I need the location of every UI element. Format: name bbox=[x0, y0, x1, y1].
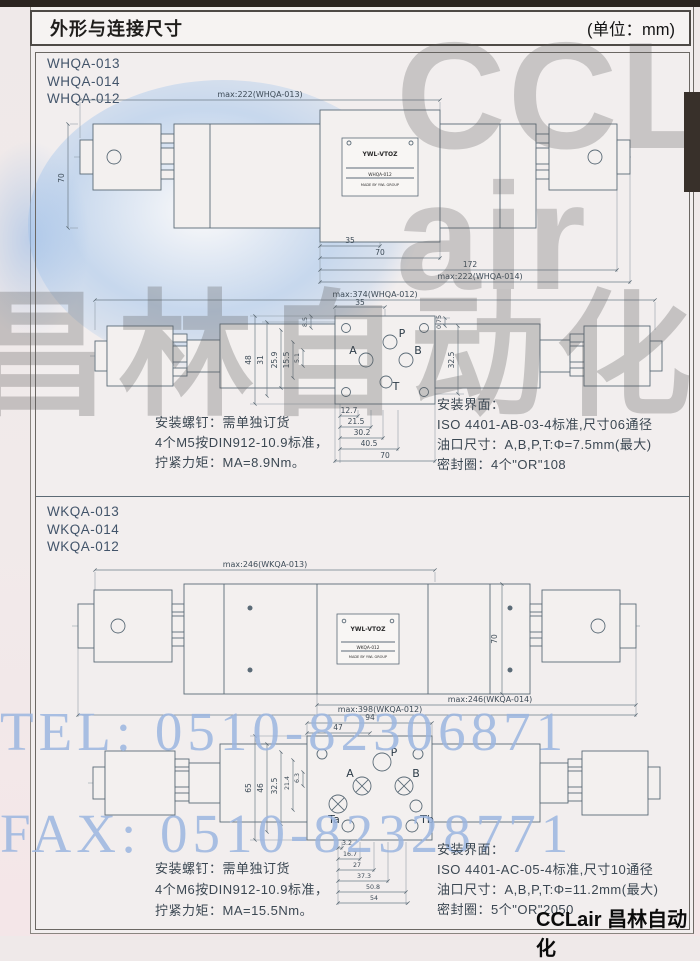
dim-label: 0.75 bbox=[436, 315, 443, 329]
dim-label: max:398(WKQA-012) bbox=[338, 705, 423, 714]
model-name: WHQA-013 bbox=[47, 55, 120, 73]
wkqa-model-list: WKQA-013 WKQA-014 WKQA-012 bbox=[47, 503, 119, 556]
dim-label: 65 bbox=[244, 783, 253, 793]
nameplate-origin: MADE BY YWL GROUP bbox=[361, 183, 399, 187]
footer-brand: CCLair 昌林自动化 bbox=[536, 903, 700, 961]
dim-label: 27 bbox=[353, 862, 361, 869]
note-line: 安装界面： bbox=[437, 840, 658, 860]
page-edge-right bbox=[684, 92, 700, 192]
dim-label: max:246(WKQA-014) bbox=[448, 695, 533, 704]
dim-label: 70 bbox=[490, 634, 499, 644]
port-label-b: B bbox=[412, 767, 420, 780]
dim-label: 30.2 bbox=[354, 428, 371, 437]
nameplate-model: WKQA-012 bbox=[356, 645, 379, 651]
port-label-p: P bbox=[391, 746, 398, 759]
note-line: 拧紧力矩：MA=15.5Nm。 bbox=[155, 900, 329, 921]
whqa-interface-notes: 安装界面： ISO 4401-AB-03-4标准,尺寸06通径 油口尺寸：A,B… bbox=[437, 395, 653, 475]
dim-label: 94 bbox=[365, 713, 375, 722]
dim-label: 5.1 bbox=[294, 353, 301, 363]
section-divider bbox=[36, 496, 689, 497]
dim-label: 16.7 bbox=[343, 851, 357, 858]
port-label-a: A bbox=[346, 767, 354, 780]
note-line: 油口尺寸：A,B,P,T:Φ=11.2mm(最大) bbox=[437, 880, 658, 900]
nameplate-model: WHQA-012 bbox=[368, 172, 392, 178]
dim-label: 70 bbox=[57, 173, 66, 183]
note-line: 安装螺钉：需单独订货 bbox=[155, 858, 329, 879]
page-title: 外形与连接尺寸 bbox=[50, 15, 183, 41]
dim-label: 32.5 bbox=[447, 351, 456, 368]
dim-label: max:374(WHQA-012) bbox=[332, 290, 417, 299]
section-header-bar: 外形与连接尺寸 (单位：mm) bbox=[30, 10, 691, 46]
valve-outline bbox=[88, 736, 660, 840]
whqa-side-view-drawing: YWL-VTOZ WHQA-012 MADE BY YWL GROUP max:… bbox=[50, 86, 665, 286]
note-line: 油口尺寸：A,B,P,T:Φ=7.5mm(最大) bbox=[437, 435, 653, 455]
nameplate-brand: YWL-VTOZ bbox=[361, 151, 398, 158]
nameplate-brand: YWL-VTOZ bbox=[349, 626, 386, 633]
dim-label: 8.5 bbox=[302, 317, 309, 327]
note-line: 密封圈：4个"OR"108 bbox=[437, 455, 653, 475]
page-edge-top bbox=[0, 0, 700, 7]
dim-label: max:222(WHQA-014) bbox=[437, 272, 522, 281]
dim-label: 35 bbox=[355, 298, 365, 307]
dim-label: 21.5 bbox=[348, 417, 365, 426]
dim-label: 25.9 bbox=[270, 351, 279, 368]
dim-label: 15.5 bbox=[282, 351, 291, 368]
note-line: 安装界面： bbox=[437, 395, 653, 415]
dim-label: 70 bbox=[375, 248, 385, 257]
port-label-ta: Ta bbox=[327, 813, 340, 826]
note-line: 4个M5按DIN912-10.9标准， bbox=[155, 433, 329, 453]
dim-label: max:222(WHQA-013) bbox=[217, 90, 302, 99]
nameplate: YWL-VTOZ WHQA-012 MADE BY YWL GROUP bbox=[342, 138, 418, 196]
port-label-p: P bbox=[399, 327, 406, 340]
dim-label: 50.8 bbox=[366, 884, 380, 891]
dim-label: 32.5 bbox=[270, 777, 279, 794]
dim-label: 37.3 bbox=[357, 873, 371, 880]
model-name: WKQA-012 bbox=[47, 538, 119, 556]
nameplate: YWL-VTOZ WKQA-012 MADE BY YWL GROUP bbox=[337, 614, 399, 664]
nameplate-origin: MADE BY YWL GROUP bbox=[349, 655, 387, 659]
dim-label: 40.5 bbox=[361, 439, 378, 448]
note-line: ISO 4401-AB-03-4标准,尺寸06通径 bbox=[437, 415, 653, 435]
dim-label: 6.3 bbox=[294, 773, 301, 783]
unit-label: (单位：mm) bbox=[587, 16, 675, 40]
wkqa-side-view-drawing: YWL-VTOZ WKQA-012 MADE BY YWL GROUP max:… bbox=[50, 558, 665, 723]
port-label-tb: Tb bbox=[419, 813, 434, 826]
dim-label: 21.4 bbox=[284, 776, 291, 790]
dim-label: 54 bbox=[370, 895, 378, 902]
dim-label: 172 bbox=[463, 260, 478, 269]
note-line: 拧紧力矩：MA=8.9Nm。 bbox=[155, 453, 329, 473]
dim-label: 48 bbox=[244, 355, 253, 365]
dim-label: max:246(WKQA-013) bbox=[223, 560, 308, 569]
dim-label: 47 bbox=[333, 723, 343, 732]
dim-label: 12.7 bbox=[341, 406, 358, 415]
model-name: WKQA-013 bbox=[47, 503, 119, 521]
port-label-b: B bbox=[414, 344, 422, 357]
dim-label: 31 bbox=[256, 355, 265, 365]
dim-label: 35 bbox=[345, 236, 355, 245]
wkqa-screw-notes: 安装螺钉：需单独订货 4个M6按DIN912-10.9标准， 拧紧力矩：MA=1… bbox=[155, 858, 329, 921]
dim-label: 3.2 bbox=[342, 840, 352, 847]
model-name: WKQA-014 bbox=[47, 521, 119, 539]
port-label-a: A bbox=[349, 344, 357, 357]
valve-outline bbox=[90, 316, 662, 404]
note-line: 安装螺钉：需单独订货 bbox=[155, 413, 329, 433]
port-label-t: T bbox=[392, 380, 400, 393]
whqa-screw-notes: 安装螺钉：需单独订货 4个M5按DIN912-10.9标准， 拧紧力矩：MA=8… bbox=[155, 413, 329, 473]
dim-label: 70 bbox=[380, 451, 390, 460]
note-line: 4个M6按DIN912-10.9标准， bbox=[155, 879, 329, 900]
dim-label: 46 bbox=[256, 783, 265, 793]
note-line: ISO 4401-AC-05-4标准,尺寸10通径 bbox=[437, 860, 658, 880]
